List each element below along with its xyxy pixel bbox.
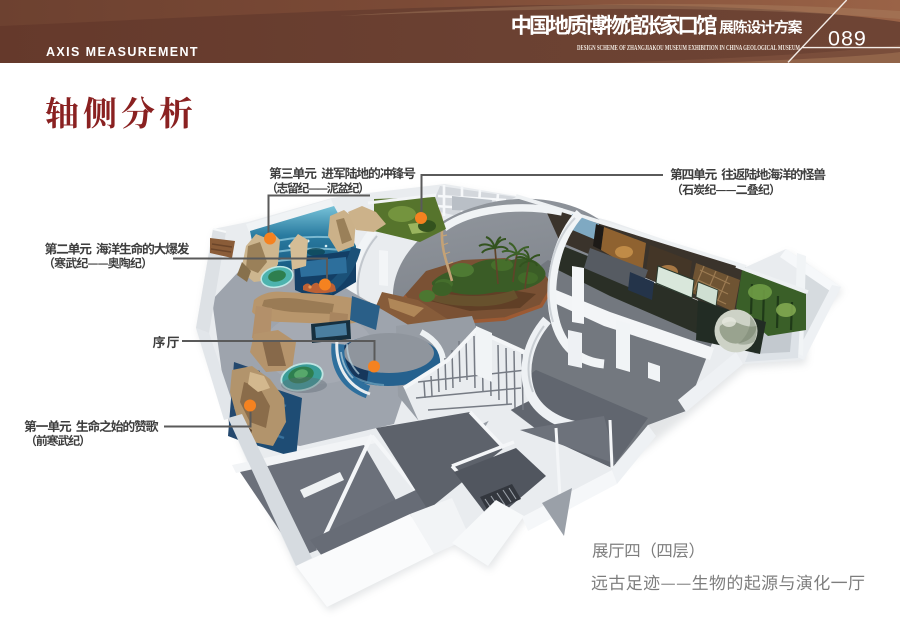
svg-text:DESIGN SCHEME OF ZHANGJIAKOU M: DESIGN SCHEME OF ZHANGJIAKOU MUSEUM EXHI… bbox=[577, 43, 800, 52]
svg-text:089: 089 bbox=[828, 27, 867, 51]
svg-text:AXIS MEASUREMENT: AXIS MEASUREMENT bbox=[46, 45, 199, 59]
